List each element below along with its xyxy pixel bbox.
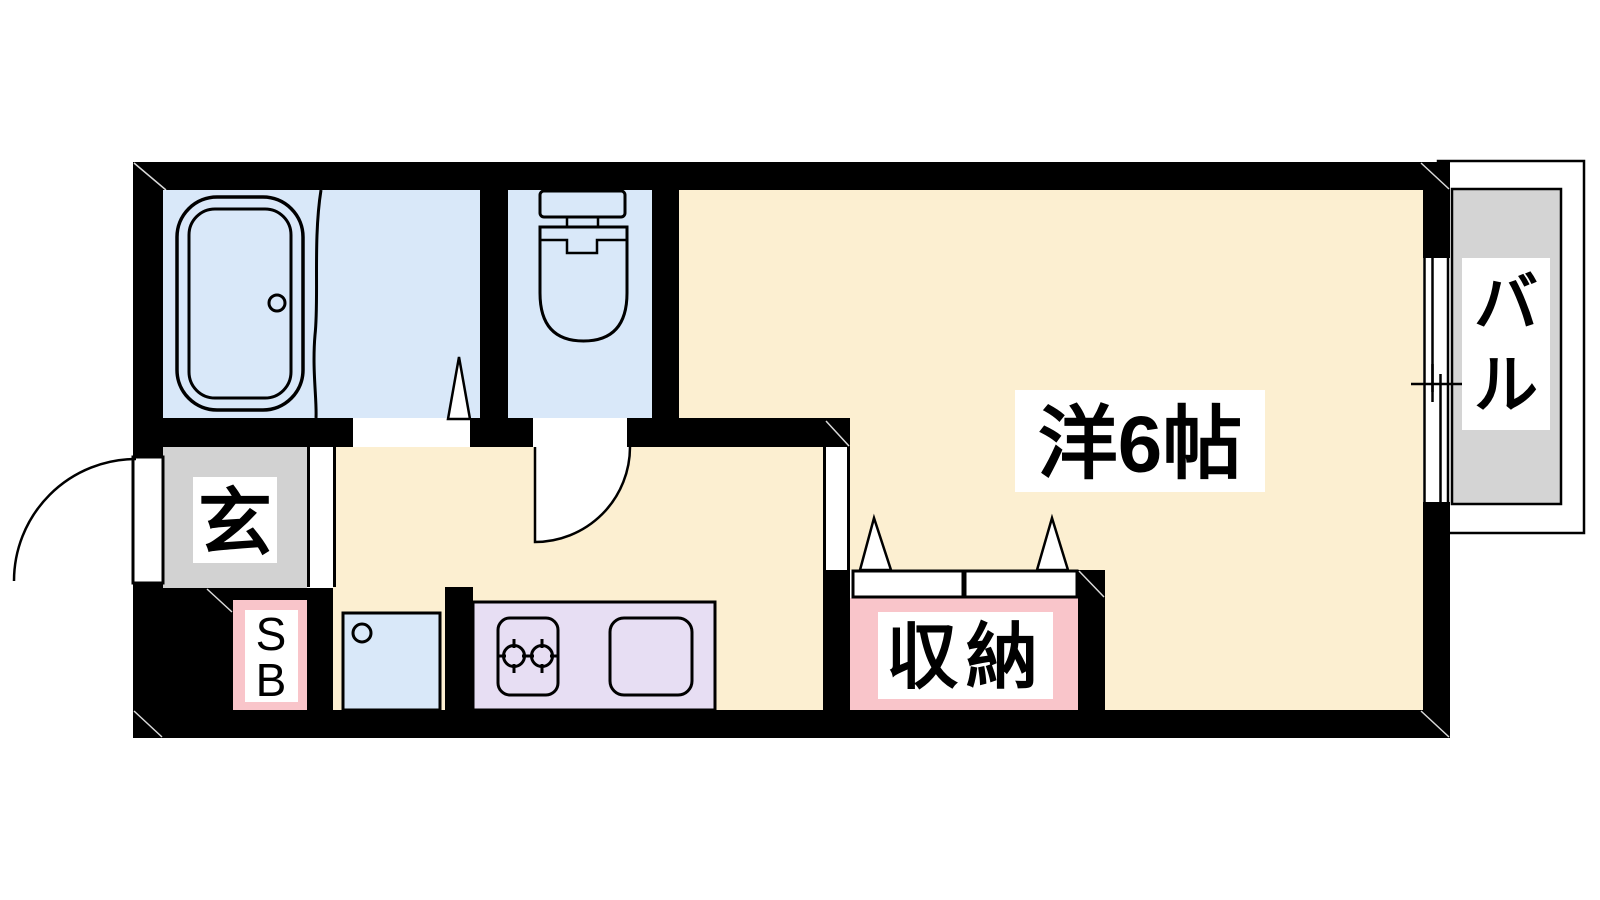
shoebox-label-line1: S (256, 608, 287, 660)
entrance-label: 玄 (193, 477, 277, 565)
entrance-door-arc (14, 459, 136, 581)
wall-horizontal-center (161, 418, 850, 447)
wall-toilet-mainroom (652, 190, 679, 447)
washing-machine-pan (343, 613, 440, 710)
wall-closet-right (1078, 570, 1105, 710)
shoebox-label: S B (245, 608, 298, 706)
balcony-label-char1: バ (1474, 267, 1538, 339)
entrance-door-leaf (133, 457, 163, 583)
wall-top (133, 162, 1450, 190)
wall-closet-left (823, 570, 850, 710)
storage-label-text: 収納 (886, 618, 1046, 698)
wall-bath-toilet (480, 190, 508, 447)
bathroom-door-opening (353, 418, 470, 447)
toilet-room-floor (508, 190, 652, 418)
floorplan-canvas: 玄 S B 収納 洋6帖 バ ル (0, 0, 1600, 900)
main-room-label: 洋6帖 (1015, 390, 1265, 492)
storage-label: 収納 (878, 612, 1053, 699)
balcony-label-char2: ル (1474, 349, 1538, 421)
toilet-door-opening (533, 418, 627, 447)
entrance-step (309, 447, 335, 587)
bathroom-floor (163, 190, 480, 418)
balcony-label: バ ル (1462, 258, 1550, 430)
shoebox-label-line2: B (256, 654, 287, 706)
main-room-label-text: 洋6帖 (1038, 400, 1243, 489)
wall-kitchen-stub (445, 587, 473, 710)
floorplan-page: 玄 S B 収納 洋6帖 バ ル (0, 0, 1600, 900)
corridor-opening (825, 447, 849, 570)
entrance-label-text: 玄 (198, 482, 272, 565)
